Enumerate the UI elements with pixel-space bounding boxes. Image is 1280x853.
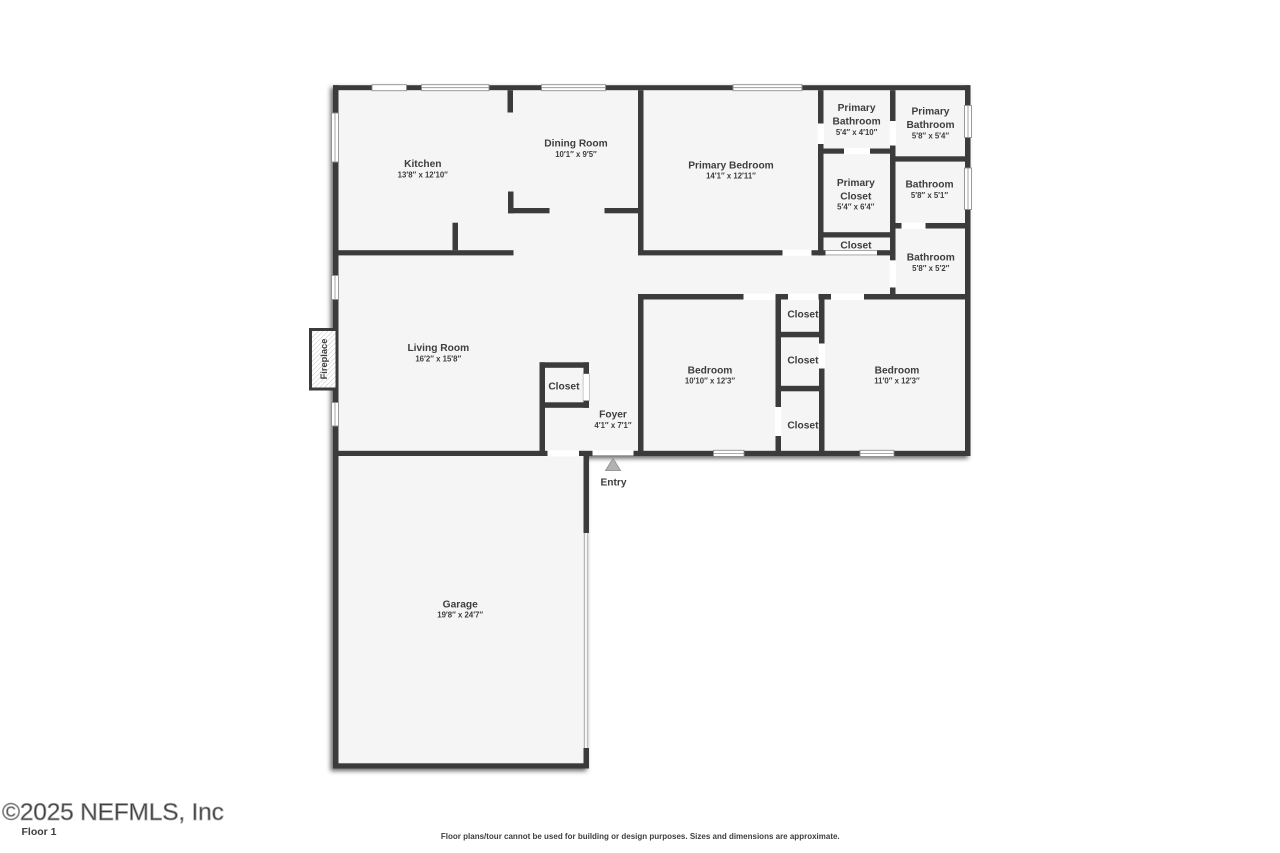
svg-text:Fireplace: Fireplace — [319, 339, 329, 380]
svg-text:16′2″ x 15′8″: 16′2″ x 15′8″ — [415, 354, 461, 363]
svg-text:Bathroom: Bathroom — [905, 180, 953, 191]
svg-text:5′8″ x 5′2″: 5′8″ x 5′2″ — [912, 264, 949, 273]
svg-text:Entry: Entry — [600, 478, 626, 489]
svg-text:Living Room: Living Room — [407, 343, 469, 354]
svg-text:Bedroom: Bedroom — [875, 365, 920, 376]
svg-text:10′1″ x 9′5″: 10′1″ x 9′5″ — [555, 150, 597, 159]
svg-text:Garage: Garage — [443, 599, 478, 610]
svg-text:Primary: Primary — [838, 103, 876, 114]
svg-text:Closet: Closet — [787, 309, 819, 320]
svg-text:Closet: Closet — [840, 191, 872, 202]
svg-text:10′10″ x 12′3″: 10′10″ x 12′3″ — [685, 377, 735, 386]
svg-text:Kitchen: Kitchen — [404, 159, 441, 170]
svg-text:Floor 1: Floor 1 — [22, 826, 57, 838]
svg-text:5′8″ x 5′1″: 5′8″ x 5′1″ — [911, 191, 948, 200]
svg-text:Primary Bedroom: Primary Bedroom — [688, 160, 774, 171]
svg-text:5′8″ x 5′4″: 5′8″ x 5′4″ — [912, 131, 949, 140]
svg-text:Closet: Closet — [548, 381, 580, 392]
svg-text:Primary: Primary — [912, 107, 950, 118]
svg-text:Closet: Closet — [787, 420, 819, 431]
svg-text:Closet: Closet — [840, 240, 872, 251]
svg-text:Floor plans/tour cannot be use: Floor plans/tour cannot be used for buil… — [441, 832, 840, 841]
svg-text:14′1″ x 12′11″: 14′1″ x 12′11″ — [706, 172, 756, 181]
svg-text:Closet: Closet — [787, 355, 819, 366]
svg-text:Bathroom: Bathroom — [906, 120, 954, 131]
svg-text:Dining Room: Dining Room — [544, 139, 607, 150]
svg-text:4′1″ x 7′1″: 4′1″ x 7′1″ — [594, 421, 631, 430]
svg-text:5′4″ x 4′10″: 5′4″ x 4′10″ — [836, 128, 878, 137]
svg-text:Primary: Primary — [837, 178, 875, 189]
svg-text:19′8″ x 24′7″: 19′8″ x 24′7″ — [437, 611, 483, 620]
svg-text:Foyer: Foyer — [599, 410, 627, 421]
svg-text:11′0″ x 12′3″: 11′0″ x 12′3″ — [874, 377, 920, 386]
svg-text:Bathroom: Bathroom — [833, 117, 881, 128]
svg-text:13′8″ x 12′10″: 13′8″ x 12′10″ — [398, 170, 448, 179]
svg-text:Bedroom: Bedroom — [688, 365, 733, 376]
svg-text:©2025 NEFMLS, Inc: ©2025 NEFMLS, Inc — [2, 799, 224, 826]
svg-text:Bathroom: Bathroom — [907, 253, 955, 264]
svg-text:5′4″ x 6′4″: 5′4″ x 6′4″ — [837, 203, 874, 212]
